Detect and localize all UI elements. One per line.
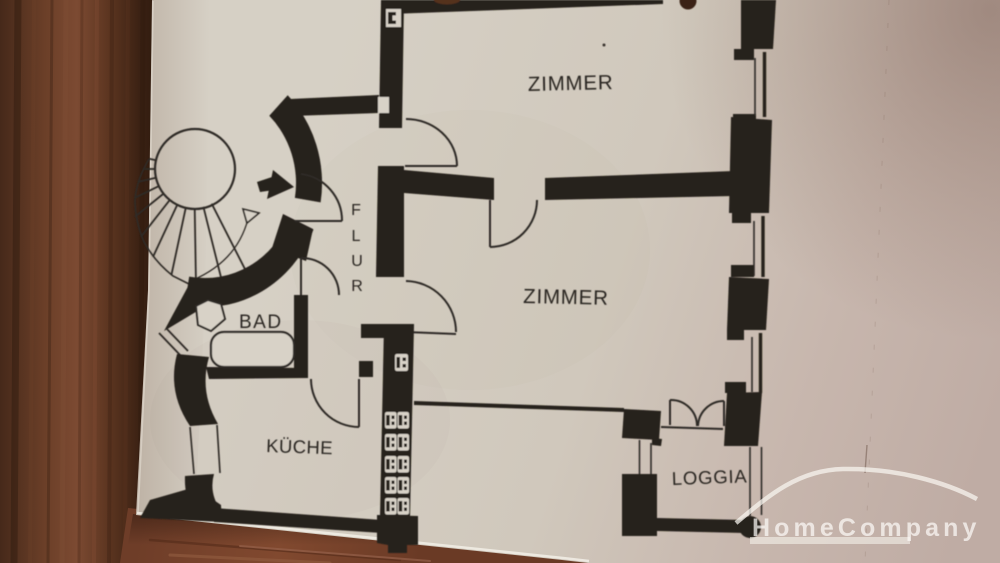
- svg-text:U: U: [351, 253, 363, 270]
- svg-text:R: R: [351, 278, 363, 295]
- svg-text:HomeCompany: HomeCompany: [752, 514, 980, 542]
- svg-text:LOGGIA: LOGGIA: [671, 465, 747, 489]
- svg-text:KÜCHE: KÜCHE: [266, 435, 333, 458]
- svg-text:L: L: [352, 228, 361, 245]
- svg-text:ZIMMER: ZIMMER: [528, 71, 614, 96]
- svg-text:BAD: BAD: [239, 312, 283, 333]
- svg-text:ZIMMER: ZIMMER: [523, 285, 609, 310]
- svg-text:F: F: [351, 202, 361, 219]
